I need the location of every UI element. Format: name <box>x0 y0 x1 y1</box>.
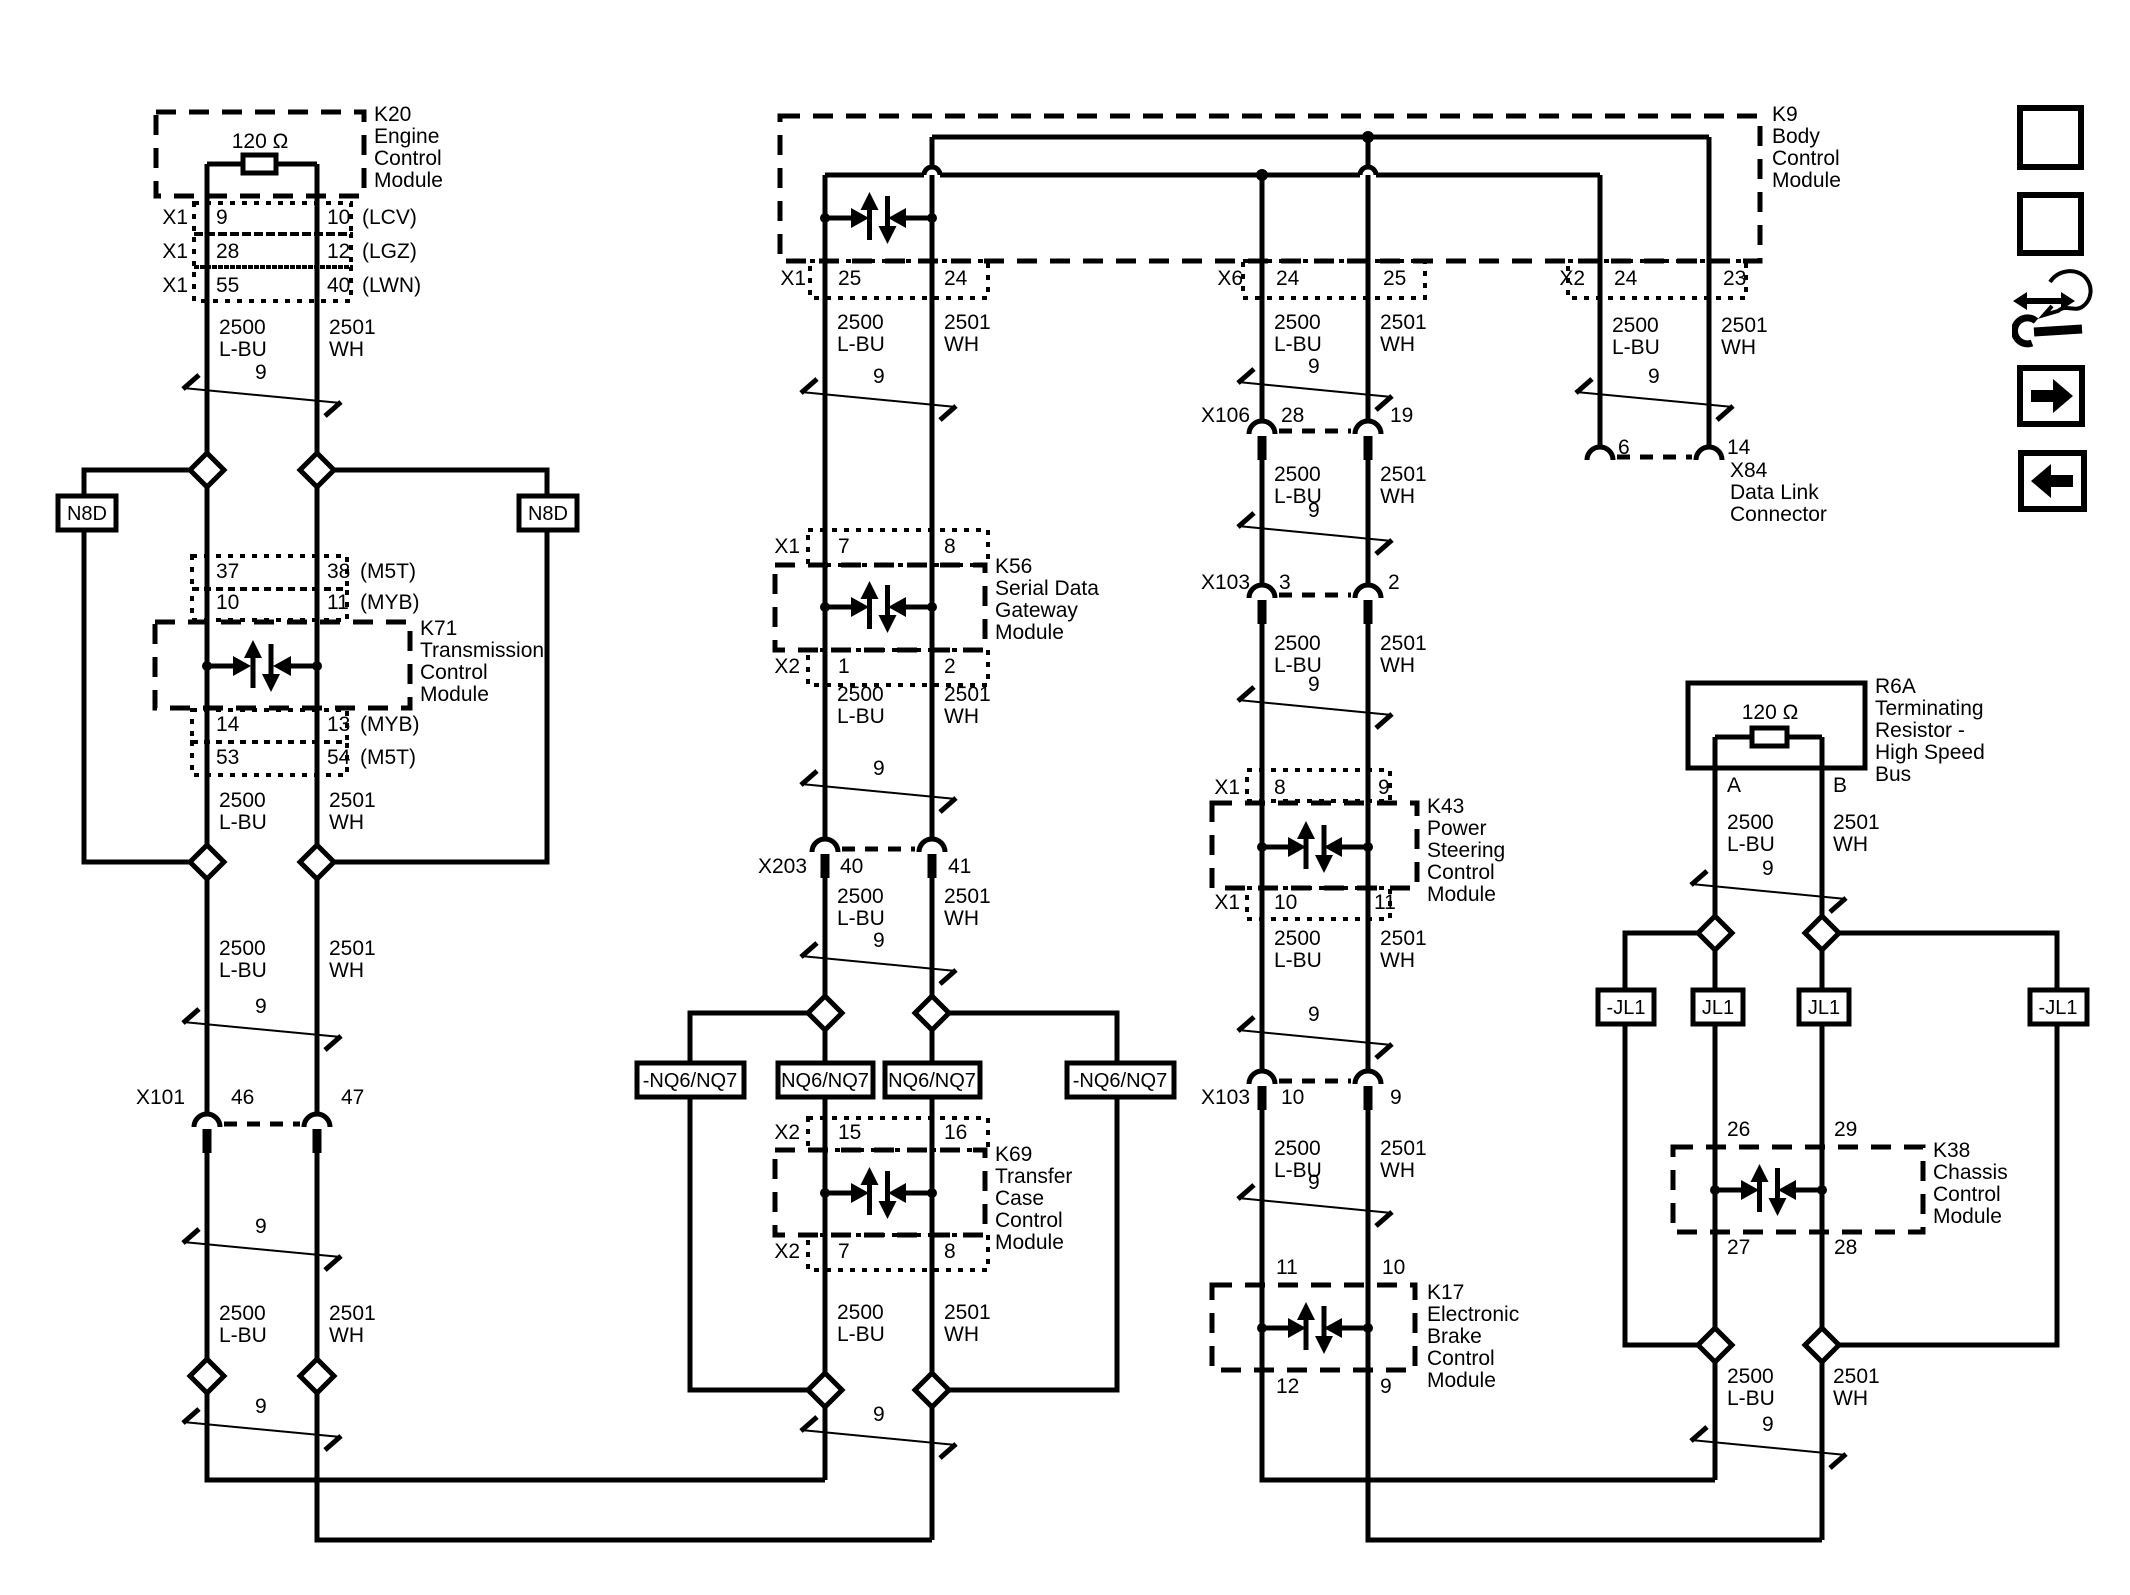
can-bus-wire <box>207 1129 825 1480</box>
label-modules-k71-pins_bottom-1-opt: (M5T) <box>360 747 416 769</box>
twisted-pair-icon <box>325 1436 341 1450</box>
label-wire_labels-high: 2500 L-BU <box>837 1302 885 1346</box>
label-modules-x84-code: X84 <box>1730 460 1767 482</box>
inline-connector-icon <box>1249 1071 1275 1084</box>
label-modules-k20-pins-0-conn: X1 <box>162 207 188 229</box>
label-wire_labels-low: 2501 WH <box>1833 812 1880 856</box>
label-modules-k71-name: Transmission Control Module <box>420 640 544 706</box>
label-modules-k71-pins_bottom-0-r: 13 <box>327 714 350 736</box>
harness-routing-icon[interactable] <box>2012 268 2097 350</box>
twisted-pair-icon <box>1238 369 1254 383</box>
label-modules-k20-code: K20 <box>374 104 411 126</box>
label-wire_labels-twist: 9 <box>255 1396 267 1418</box>
twisted-pair-icon <box>940 798 956 812</box>
label-wire_labels-twist: 9 <box>1762 858 1774 880</box>
twisted-pair-icon <box>940 406 956 420</box>
label-inline_connectors-x203-l: 40 <box>840 856 863 878</box>
left-arrow-icon <box>2024 456 2081 506</box>
label-option_tags-nq-3: -NQ6/NQ7 <box>1073 1070 1167 1092</box>
label-modules-k71-pins_bottom-0-opt: (MYB) <box>360 714 420 736</box>
wire-hop <box>924 167 940 175</box>
label-modules-k20-pins-2-r: 40 <box>327 275 350 297</box>
label-wire_labels-low: 2501 WH <box>329 938 376 982</box>
label-wire_labels-twist: 9 <box>255 362 267 384</box>
can-bus-wire <box>690 1013 825 1064</box>
label-resistor_value: 120 Ω <box>232 131 289 153</box>
label-wire_labels-twist: 9 <box>255 996 267 1018</box>
wiring-diagram: K20Engine Control ModuleK71Transmission … <box>0 0 2130 1595</box>
label-inline_connectors-x101-r: 47 <box>341 1087 364 1109</box>
splice-diamond <box>300 453 334 487</box>
label-modules-r6a-pins-l: A <box>1727 775 1741 797</box>
label-modules-x84-pins-r: 14 <box>1727 437 1750 459</box>
twisted-pair-icon <box>1238 1017 1254 1031</box>
twisted-pair-icon <box>940 1444 956 1458</box>
label-modules-k71-pins_top-1-l: 10 <box>216 592 239 614</box>
data-arrow-icon <box>273 656 291 676</box>
label-modules-k56-pins_bottom-l: 1 <box>838 656 850 678</box>
label-inline_connectors-x106-l: 28 <box>1281 405 1304 427</box>
data-arrow-icon <box>879 226 897 244</box>
twisted-pair-icon <box>1376 540 1392 554</box>
resistor-icon <box>243 155 276 173</box>
label-inline_connectors-x101-code: X101 <box>136 1087 185 1109</box>
label-modules-k71-pins_top-1-opt: (MYB) <box>360 592 420 614</box>
back-button[interactable] <box>2018 450 2087 512</box>
data-arrow-icon <box>1297 821 1315 839</box>
twisted-pair-icon <box>325 402 341 416</box>
twisted-pair-icon <box>1238 513 1254 527</box>
can-bus-wire <box>932 1013 1117 1064</box>
splice-diamond <box>808 996 842 1030</box>
module-outline <box>775 1150 985 1235</box>
twisted-pair-icon <box>325 1036 341 1050</box>
label-modules-k17-pins_top-l: 11 <box>1276 1257 1298 1279</box>
label-modules-k9-pins-1-conn: X6 <box>1217 268 1243 290</box>
data-arrow-icon <box>1769 1198 1787 1216</box>
label-modules-k69-pins_top-conn: X2 <box>774 1122 800 1144</box>
label-wire_labels-low: 2501 WH <box>1380 464 1427 508</box>
label-wire_labels-low: 2501 WH <box>1380 633 1427 677</box>
label-option_tags-nq-2: NQ6/NQ7 <box>888 1070 976 1092</box>
label-inline_connectors-x103a-l: 3 <box>1279 572 1291 594</box>
label-modules-k71-pins_top-0-l: 37 <box>216 561 239 583</box>
inline-connector-icon <box>812 839 838 852</box>
label-modules-x84-name: Data Link Connector <box>1730 482 1827 526</box>
label-wire_labels-twist: 9 <box>1308 1172 1320 1194</box>
data-arrow-icon <box>879 615 897 633</box>
inline-connector-icon <box>194 1114 220 1127</box>
label-modules-k38-pins_top-r: 29 <box>1834 1119 1857 1141</box>
label-wire_labels-twist: 9 <box>1308 674 1320 696</box>
label-modules-k20-pins-2-conn: X1 <box>162 275 188 297</box>
label-modules-k43-pins_bottom-conn: X1 <box>1214 892 1240 914</box>
label-modules-k56-code: K56 <box>995 556 1032 578</box>
label-modules-k17-name: Electronic Brake Control Module <box>1427 1304 1519 1392</box>
label-modules-k71-code: K71 <box>420 618 457 640</box>
label-modules-k9-name: Body Control Module <box>1772 126 1841 192</box>
splice-diamond <box>1698 916 1732 950</box>
twisted-pair-icon <box>940 970 956 984</box>
module-outline <box>775 565 985 650</box>
twisted-pair-icon <box>801 379 817 393</box>
label-modules-k20-pins-1-conn: X1 <box>162 241 188 263</box>
label-inline_connectors-x101-l: 46 <box>231 1087 254 1109</box>
label-wire_labels-low: 2501 WH <box>1833 1366 1880 1410</box>
pin-row-outline <box>808 530 988 565</box>
label-wire_labels-low: 2501 WH <box>944 312 991 356</box>
forward-button[interactable] <box>2017 365 2085 427</box>
data-arrow-icon <box>879 1201 897 1219</box>
wiring-diagram-canvas <box>0 0 2130 1595</box>
label-inline_connectors-x103a-r: 2 <box>1388 572 1400 594</box>
label-wire_labels-high: 2500 L-BU <box>219 1303 267 1347</box>
label-modules-k71-pins_bottom-0-l: 14 <box>216 714 239 736</box>
can-bus-wire <box>1625 1023 1715 1345</box>
data-arrow-icon <box>233 656 251 676</box>
label-modules-k9-pins-1-r: 25 <box>1383 268 1406 290</box>
label-wire_labels-low: 2501 WH <box>329 790 376 834</box>
label-modules-k20-pins-1-opt: (LGZ) <box>362 241 417 263</box>
can-bus-wire <box>317 470 547 497</box>
label-modules-k9-pins-0-r: 24 <box>944 268 967 290</box>
junction-dot <box>1362 131 1374 143</box>
pin-row-outline <box>808 1235 988 1270</box>
module-outline <box>1212 803 1417 888</box>
data-arrow-icon <box>1297 1302 1315 1320</box>
label-modules-k9-pins-0-conn: X1 <box>780 268 806 290</box>
twisted-pair-icon <box>1691 1427 1707 1441</box>
twisted-pair-icon <box>1717 406 1733 420</box>
label-wire_labels-low: 2501 WH <box>1380 928 1427 972</box>
label-option_tags-jl-3: -JL1 <box>2039 997 2078 1019</box>
label-wire_labels-twist: 9 <box>873 366 885 388</box>
data-arrow-icon <box>1288 837 1306 857</box>
label-modules-k71-pins_top-0-opt: (M5T) <box>360 561 416 583</box>
label-wire_labels-high: 2500 L-BU <box>837 312 885 356</box>
data-arrow-icon <box>1778 1180 1796 1200</box>
label-modules-k71-pins_top-1-r: 11 <box>327 592 349 614</box>
label-wire_labels-high: 2500 L-BU <box>1727 1366 1775 1410</box>
label-modules-k9-pins-2-l: 24 <box>1614 268 1637 290</box>
location-view-button[interactable] <box>2017 105 2084 170</box>
label-modules-k43-code: K43 <box>1427 796 1464 818</box>
twisted-pair-icon <box>1830 1454 1846 1468</box>
label-option_tags-jl-0: -JL1 <box>1607 997 1646 1019</box>
inline-connector-icon <box>1355 421 1381 434</box>
label-modules-k38-pins_bottom-r: 28 <box>1834 1237 1857 1259</box>
label-modules-k38-name: Chassis Control Module <box>1933 1162 2008 1228</box>
label-modules-x84-pins-l: 6 <box>1618 437 1630 459</box>
wrench-icon <box>2014 318 2036 344</box>
data-arrow-icon <box>244 640 262 658</box>
data-arrow-icon <box>1315 1336 1333 1354</box>
label-wire_labels-twist: 9 <box>1762 1414 1774 1436</box>
label-wire_labels-high: 2500 L-BU <box>1274 928 1322 972</box>
splice-diamond <box>915 1373 949 1407</box>
label-wire_labels-low: 2501 WH <box>944 1302 991 1346</box>
splice-diamond <box>190 1359 224 1393</box>
label-option_tags-n8d: N8D <box>528 503 568 525</box>
label-modules-k20-pins-0-r: 10 <box>327 207 350 229</box>
can-bus-wire <box>690 1096 825 1390</box>
label-modules-k20-pins-2-l: 55 <box>216 275 239 297</box>
label-inline_connectors-x103b-r: 9 <box>1390 1087 1402 1109</box>
twisted-pair-icon <box>1376 1212 1392 1226</box>
data-arrow-icon <box>851 208 869 228</box>
twisted-pair-icon <box>801 1417 817 1431</box>
label-wire_labels-high: 2500 L-BU <box>219 790 267 834</box>
splice-diamond <box>1805 916 1839 950</box>
label-modules-k20-pins-1-l: 28 <box>216 241 239 263</box>
label-modules-k9-pins-2-r: 23 <box>1723 268 1746 290</box>
label-modules-k69-pins_bottom-conn: X2 <box>774 1241 800 1263</box>
label-modules-k69-name: Transfer Case Control Module <box>995 1166 1072 1254</box>
label-wire_labels-high: 2500 L-BU <box>837 684 885 728</box>
data-arrow-icon <box>851 1183 869 1203</box>
label-wire_labels-twist: 9 <box>1308 356 1320 378</box>
splice-diamond <box>190 845 224 879</box>
label-wire_labels-twist: 9 <box>1648 366 1660 388</box>
data-arrow-icon <box>1741 1180 1759 1200</box>
label-inline_connectors-x203-r: 41 <box>948 856 971 878</box>
label-wire_labels-twist: 9 <box>873 1404 885 1426</box>
data-arrow-icon <box>262 674 280 692</box>
label-wire_labels-high: 2500 L-BU <box>837 886 885 930</box>
label-modules-k20-pins-1-r: 12 <box>327 241 350 263</box>
inline-connector-icon <box>1355 585 1381 598</box>
label-modules-k43-pins_top-conn: X1 <box>1214 777 1240 799</box>
right-arrow-icon <box>2023 371 2079 421</box>
label-modules-k43-pins_bottom-l: 10 <box>1274 892 1297 914</box>
label-modules-k20-name: Engine Control Module <box>374 126 443 192</box>
inline-connector-icon <box>1696 447 1722 460</box>
label-modules-k71-pins_bottom-1-l: 53 <box>216 747 239 769</box>
twisted-pair-icon <box>1576 379 1592 393</box>
inline-connector-icon <box>1587 447 1613 460</box>
label-modules-k69-pins_top-l: 15 <box>838 1122 861 1144</box>
splice-diamond <box>1698 1328 1732 1362</box>
twisted-pair-icon <box>801 771 817 785</box>
label-wire_labels-high: 2500 L-BU <box>1612 315 1660 359</box>
label-modules-k71-pins_bottom-1-r: 54 <box>327 747 350 769</box>
module-outline <box>1212 1285 1415 1370</box>
label-modules-k69-pins_top-r: 16 <box>944 1122 967 1144</box>
label-wire_labels-high: 2500 L-BU <box>1727 812 1775 856</box>
label-modules-k20-pins-0-l: 9 <box>216 207 228 229</box>
label-modules-k56-pins_bottom-conn: X2 <box>774 656 800 678</box>
twisted-pair-icon <box>183 1229 199 1243</box>
label-wire_labels-low: 2501 WH <box>944 886 991 930</box>
label-modules-k43-name: Power Steering Control Module <box>1427 818 1505 906</box>
label-modules-k38-pins_top-l: 26 <box>1727 1119 1750 1141</box>
label-modules-k43-pins_bottom-r: 11 <box>1374 892 1396 914</box>
label-wire_labels-low: 2501 WH <box>1380 1138 1427 1182</box>
label-modules-k43-pins_top-l: 8 <box>1274 777 1286 799</box>
data-arrow-icon <box>888 597 906 617</box>
pin-row-outline <box>808 650 988 685</box>
data-arrow-icon <box>1315 855 1333 873</box>
splice-diamond <box>915 996 949 1030</box>
label-modules-k69-pins_bottom-l: 7 <box>838 1241 850 1263</box>
data-arrow-icon <box>1324 837 1342 857</box>
label-wire_labels-twist: 9 <box>255 1216 267 1238</box>
data-arrow-icon <box>1288 1318 1306 1338</box>
label-inline_connectors-x106-r: 19 <box>1390 405 1413 427</box>
label-modules-k56-pins_bottom-r: 2 <box>944 656 956 678</box>
data-arrow-icon <box>861 1167 879 1185</box>
label-modules-k38-code: K38 <box>1933 1140 1970 1162</box>
label-modules-k56-name: Serial Data Gateway Module <box>995 578 1099 644</box>
label-option_tags-n8d: N8D <box>67 503 107 525</box>
label-wire_labels-high: 2500 L-BU <box>219 317 267 361</box>
label-wire_labels-twist: 9 <box>873 930 885 952</box>
label-modules-k17-pins_top-r: 10 <box>1382 1257 1405 1279</box>
label-wire_labels-low: 2501 WH <box>329 1303 376 1347</box>
label-modules-k56-pins_top-conn: X1 <box>774 536 800 558</box>
label-modules-k17-code: K17 <box>1427 1282 1464 1304</box>
can-bus-wire <box>84 529 207 862</box>
twisted-pair-icon <box>1830 898 1846 912</box>
splice-diamond <box>300 845 334 879</box>
label-inline_connectors-x203-code: X203 <box>758 856 807 878</box>
twisted-pair-icon <box>183 1409 199 1423</box>
twisted-pair-icon <box>325 1256 341 1270</box>
label-modules-r6a-code: R6A <box>1875 676 1916 698</box>
label-modules-k56-pins_top-l: 7 <box>838 536 850 558</box>
label-inline_connectors-x103b-code: X103 <box>1201 1087 1250 1109</box>
label-modules-k9-pins-0-l: 25 <box>838 268 861 290</box>
wire-hop <box>1360 167 1376 175</box>
twisted-pair-icon <box>1376 1044 1392 1058</box>
label-modules-k69-code: K69 <box>995 1144 1032 1166</box>
label-modules-k43-pins_top-r: 9 <box>1378 777 1390 799</box>
label-option_tags-nq-0: -NQ6/NQ7 <box>643 1070 737 1092</box>
label-inline_connectors-x103a-code: X103 <box>1201 572 1250 594</box>
can-bus-wire <box>1625 933 1715 991</box>
label-modules-r6a-pins-r: B <box>1833 775 1847 797</box>
inline-connector-icon <box>304 1114 330 1127</box>
twisted-pair-icon <box>1376 714 1392 728</box>
label-wire_labels-twist: 9 <box>1308 500 1320 522</box>
label-modules-k20-pins-0-opt: (LCV) <box>362 207 417 229</box>
label-wire_labels-twist: 9 <box>873 758 885 780</box>
label-modules-r6a-name: Terminating Resistor - High Speed Bus <box>1875 698 1985 786</box>
label-modules-k56-pins_top-r: 8 <box>944 536 956 558</box>
label-modules-k69-pins_bottom-r: 8 <box>944 1241 956 1263</box>
label-wire_labels-high: 2500 L-BU <box>1274 312 1322 356</box>
splice-diamond <box>300 1359 334 1393</box>
twisted-pair-icon <box>183 1009 199 1023</box>
label-inline_connectors-x106-code: X106 <box>1201 405 1250 427</box>
data-arrow-icon <box>1751 1164 1769 1182</box>
label-wire_labels-low: 2501 WH <box>944 684 991 728</box>
label-modules-k9-pins-1-l: 24 <box>1276 268 1299 290</box>
label-option_tags-jl-1: JL1 <box>1702 997 1734 1019</box>
label-modules-k17-pins_bottom-r: 9 <box>1380 1376 1392 1398</box>
label-wire_labels-low: 2501 WH <box>1380 312 1427 356</box>
splice-diamond <box>190 453 224 487</box>
inline-connector-icon <box>1249 421 1275 434</box>
label-modules-k71-pins_top-0-r: 38 <box>327 561 350 583</box>
label-wire_labels-low: 2501 WH <box>329 317 376 361</box>
label-resistor_value: 120 Ω <box>1742 702 1799 724</box>
can-bus-wire <box>1822 933 2057 991</box>
label-modules-k17-pins_bottom-l: 12 <box>1276 1376 1299 1398</box>
label-wire_labels-twist: 9 <box>1308 1004 1320 1026</box>
data-arrow-icon <box>861 581 879 599</box>
label-wire_labels-high: 2500 L-BU <box>1274 633 1322 677</box>
twisted-pair-icon <box>1238 687 1254 701</box>
twisted-pair-icon <box>1238 1185 1254 1199</box>
data-arrow-icon <box>888 1183 906 1203</box>
label-wire_labels-high: 2500 L-BU <box>219 938 267 982</box>
resistor-icon <box>1752 728 1787 746</box>
label-modules-k9-code: K9 <box>1772 104 1798 126</box>
inline-connector-icon <box>919 839 945 852</box>
label-option_tags-jl-2: JL1 <box>1808 997 1840 1019</box>
label-modules-k20-pins-2-opt: (LWN) <box>362 275 421 297</box>
label-wire_labels-low: 2501 WH <box>1721 315 1768 359</box>
label-modules-k38-pins_bottom-l: 27 <box>1727 1237 1750 1259</box>
can-bus-wire <box>84 470 207 497</box>
label-option_tags-nq-1: NQ6/NQ7 <box>781 1070 869 1092</box>
pin-row-outline <box>1568 261 1746 298</box>
inline-connector-icon <box>1249 585 1275 598</box>
label-inline_connectors-x103b-l: 10 <box>1281 1087 1304 1109</box>
description-view-button[interactable] <box>2017 192 2084 256</box>
data-arrow-icon <box>851 597 869 617</box>
data-arrow-icon <box>888 208 906 228</box>
twisted-pair-icon <box>1691 871 1707 885</box>
twisted-pair-icon <box>183 375 199 389</box>
splice-diamond <box>808 1373 842 1407</box>
inline-connector-icon <box>1355 1071 1381 1084</box>
junction-dot <box>1256 169 1268 181</box>
data-arrow-icon <box>861 192 879 210</box>
splice-diamond <box>1805 1328 1839 1362</box>
data-arrow-icon <box>1324 1318 1342 1338</box>
twisted-pair-icon <box>801 943 817 957</box>
label-modules-k9-pins-2-conn: X2 <box>1559 268 1585 290</box>
